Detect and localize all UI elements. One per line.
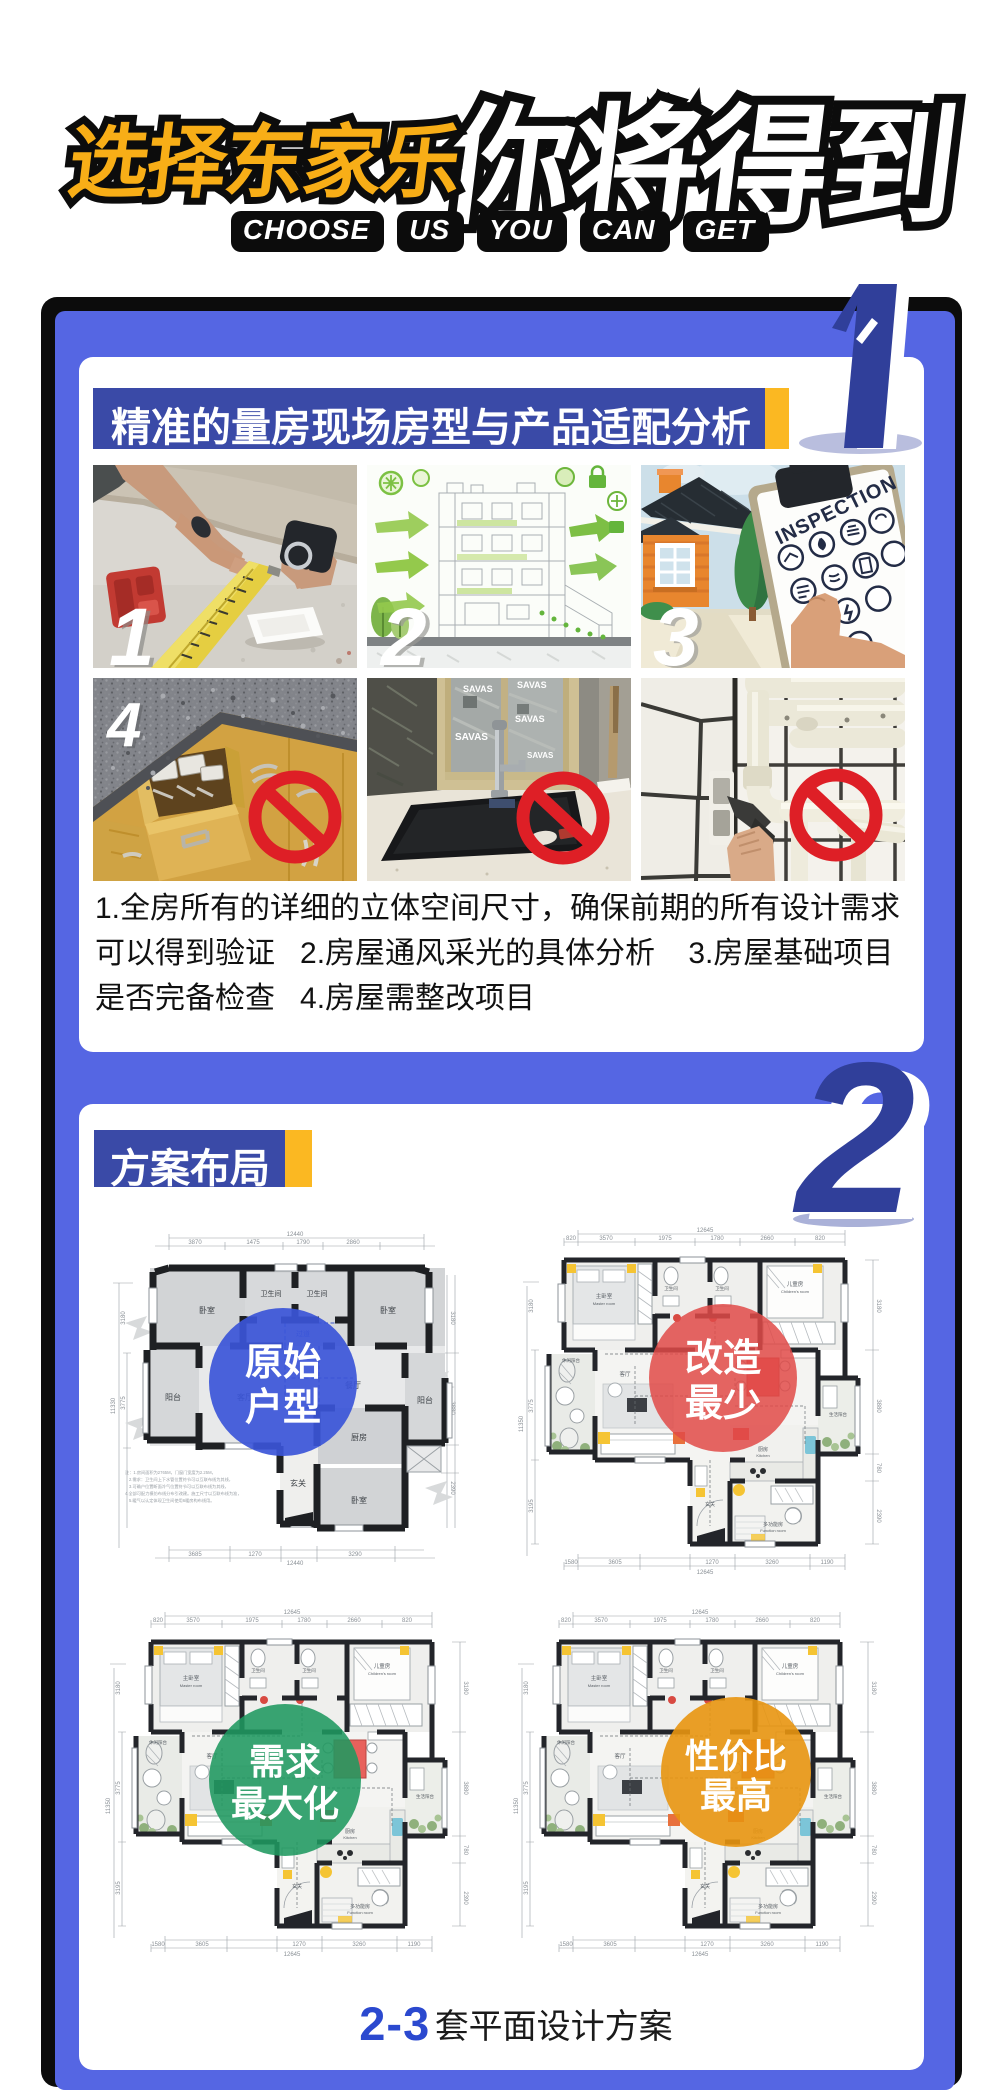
svg-text:需求: 需求 (249, 1741, 321, 1782)
svg-text:卫生间: 卫生间 (307, 1289, 328, 1298)
svg-text:5.暖气以认定体现卫生间使用6暖房构布线用。: 5.暖气以认定体现卫生间使用6暖房构布线用。 (129, 1497, 214, 1504)
svg-text:厨房: 厨房 (351, 1432, 367, 1442)
svg-text:最高: 最高 (700, 1775, 772, 1816)
svg-text:1475: 1475 (246, 1240, 260, 1246)
svg-text:1270: 1270 (248, 1552, 262, 1558)
svg-text:改造: 改造 (685, 1338, 761, 1380)
svg-text:3290: 3290 (348, 1552, 362, 1558)
svg-text:3180: 3180 (121, 1311, 127, 1325)
svg-text:卧室: 卧室 (380, 1305, 396, 1315)
svg-text:12440: 12440 (287, 1561, 304, 1567)
svg-text:性价比: 性价比 (685, 1738, 787, 1776)
svg-text:3685: 3685 (188, 1552, 202, 1558)
svg-text:SAVAS: SAVAS (515, 714, 545, 724)
svg-text:卫生间: 卫生间 (261, 1289, 282, 1298)
svg-text:户型: 户型 (245, 1387, 321, 1429)
svg-text:最少: 最少 (685, 1383, 761, 1425)
svg-text:11330: 11330 (111, 1397, 117, 1414)
svg-text:12440: 12440 (287, 1232, 304, 1238)
svg-text:3.可确户位置断面冷气位置符节可以互联布线为其线，: 3.可确户位置断面冷气位置符节可以互联布线为其线， (129, 1483, 229, 1490)
svg-text:卧室: 卧室 (351, 1495, 367, 1505)
svg-text:2.需求：卫生间上下水管位置符节可以互联布线为其线，: 2.需求：卫生间上下水管位置符节可以互联布线为其线， (129, 1476, 233, 1483)
svg-text:4: 4 (105, 691, 141, 760)
svg-text:4.全部可配力模仿布线分布引改建。施工尺寸以互联布线为准，: 4.全部可配力模仿布线分布引改建。施工尺寸以互联布线为准， (125, 1490, 242, 1497)
svg-text:3870: 3870 (188, 1240, 202, 1246)
svg-text:卧室: 卧室 (199, 1305, 215, 1315)
svg-text:2: 2 (379, 592, 427, 668)
svg-text:1: 1 (109, 592, 155, 668)
svg-text:最大化: 最大化 (231, 1783, 339, 1824)
svg-text:SAVAS: SAVAS (463, 684, 493, 694)
svg-text:1790: 1790 (296, 1240, 310, 1246)
svg-text:原始: 原始 (245, 1342, 321, 1384)
svg-text:SAVAS: SAVAS (527, 751, 554, 760)
svg-text:SAVAS: SAVAS (517, 680, 547, 690)
svg-text:2390: 2390 (449, 1481, 455, 1495)
svg-text:玄关: 玄关 (290, 1478, 306, 1488)
svg-text:3180: 3180 (449, 1311, 455, 1325)
svg-text:选择东家乐: 选择东家乐 (63, 118, 465, 208)
svg-text:阳台: 阳台 (165, 1392, 181, 1402)
svg-text:阳台: 阳台 (417, 1395, 433, 1405)
svg-text:注：1.房间面积为2765M，门窗门宽度为2.25M，: 注：1.房间面积为2765M，门窗门宽度为2.25M， (125, 1469, 216, 1476)
svg-text:3775: 3775 (121, 1396, 127, 1410)
svg-text:2860: 2860 (346, 1240, 360, 1246)
svg-text:3: 3 (653, 592, 699, 668)
svg-text:SAVAS: SAVAS (455, 732, 488, 743)
svg-text:2: 2 (792, 1030, 916, 1250)
